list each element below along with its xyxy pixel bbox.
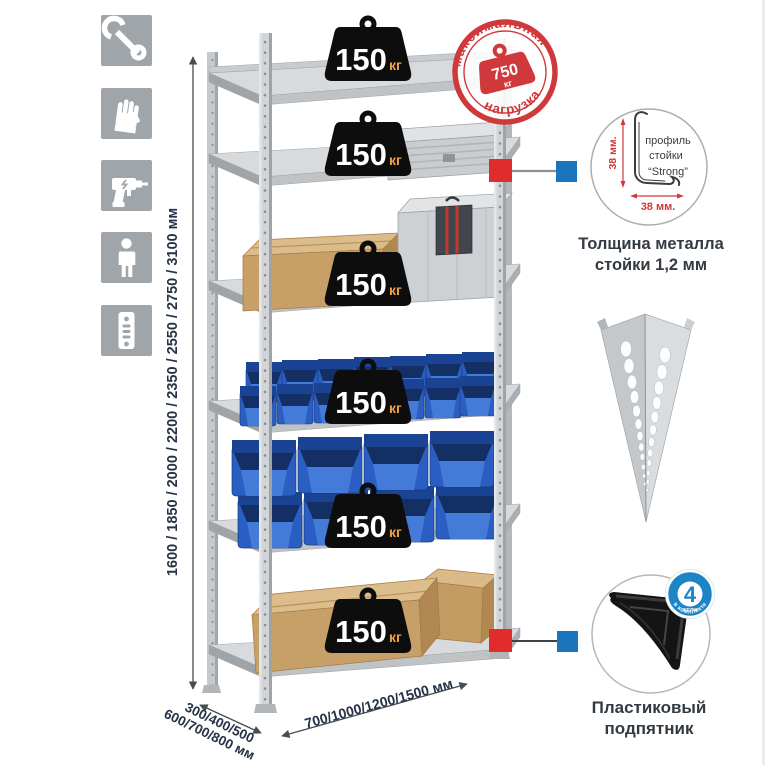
upright-icon [101, 305, 152, 356]
blue-marker-bottom [557, 631, 578, 652]
shelf-load-badge-2 [325, 113, 411, 176]
blue-marker-top [556, 161, 577, 182]
upright-post-image [597, 314, 695, 522]
included-badge: 4 штуки в комплекте [666, 570, 715, 619]
red-marker-top [489, 159, 512, 182]
thickness-caption-2: стойки 1,2 мм [595, 256, 707, 274]
height-dimension: 1600 / 1850 / 2000 / 2200 / 2350 / 2550 … [165, 57, 193, 689]
shelf-load-badges [325, 18, 411, 653]
profile-label-3: “Strong” [648, 166, 688, 178]
width-label: 700/1000/1200/1500 мм [303, 675, 455, 731]
profile-dim-width: 38 мм. [641, 201, 676, 213]
profile-label-2: стойки [649, 150, 683, 162]
profile-callout-top [489, 159, 577, 182]
max-load-stamp: максимальная нагрузка 750 кг [440, 4, 569, 134]
foot-callout-bottom [489, 629, 578, 652]
profile-label-1: профиль [645, 135, 691, 147]
rack-post-back-left [202, 52, 221, 693]
depth-dimension: 300/400/500 600/700/800 мм [162, 693, 264, 763]
post-profile-detail: 38 мм. 38 мм. профиль стойки “Strong” То… [578, 109, 724, 274]
profile-dim-height: 38 мм. [607, 136, 619, 169]
icon-column [101, 15, 152, 356]
rack-post-back-right [506, 45, 512, 650]
height-label: 1600 / 1850 / 2000 / 2200 / 2350 / 2550 … [165, 208, 181, 576]
shelving-infographic: 150 кг [0, 0, 765, 765]
plastic-foot-detail: 4 штуки в комплекте Пластиковый подпятни… [592, 570, 715, 739]
shelf-load-badge-1 [325, 18, 411, 81]
width-dimension: 700/1000/1200/1500 мм [282, 675, 467, 736]
scene: 150 кг [0, 0, 765, 765]
foot-caption-1: Пластиковый [592, 698, 707, 717]
thickness-caption-1: Толщина металла [578, 235, 724, 253]
drill-icon [101, 160, 152, 211]
wrench-icon [101, 15, 152, 66]
badge-number: 4 [684, 582, 697, 607]
foot-caption-2: подпятник [605, 719, 694, 738]
red-marker-bottom [489, 629, 512, 652]
person-icon [101, 232, 152, 283]
gloves-icon [101, 88, 152, 139]
